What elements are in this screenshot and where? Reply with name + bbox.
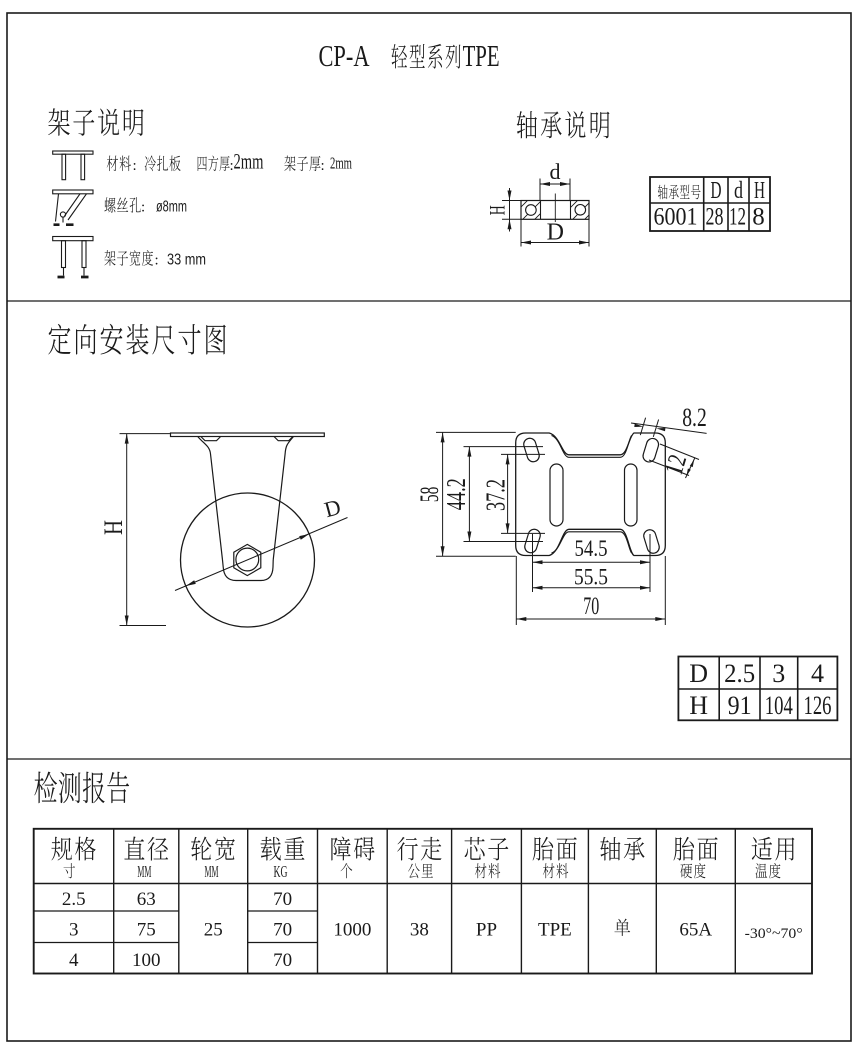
svg-text:D: D <box>322 494 344 522</box>
svg-text:MM: MM <box>137 862 151 881</box>
svg-text:44.2: 44.2 <box>441 478 471 510</box>
svg-text::: : <box>321 158 325 174</box>
svg-text:54.5: 54.5 <box>575 536 608 561</box>
svg-text:2.5: 2.5 <box>724 659 755 688</box>
svg-text:CP-A: CP-A <box>319 38 370 73</box>
svg-text:1000: 1000 <box>333 920 371 941</box>
svg-text:25: 25 <box>204 920 223 941</box>
svg-text:8: 8 <box>752 204 765 231</box>
svg-text:33 mm: 33 mm <box>167 252 206 269</box>
svg-text:TPE: TPE <box>538 920 572 941</box>
svg-text:91: 91 <box>728 691 752 720</box>
svg-text:TPE: TPE <box>463 38 500 73</box>
svg-text:KG: KG <box>274 862 288 881</box>
svg-text:D: D <box>689 659 708 688</box>
svg-text:58: 58 <box>415 487 444 503</box>
svg-text:75: 75 <box>137 920 156 941</box>
svg-text:D: D <box>711 178 722 204</box>
svg-text:70: 70 <box>273 950 292 971</box>
svg-text:H: H <box>754 178 765 204</box>
svg-text:55.5: 55.5 <box>574 564 608 589</box>
svg-text:8.2: 8.2 <box>682 403 707 432</box>
svg-text:4: 4 <box>811 659 824 688</box>
svg-text:70: 70 <box>273 889 292 910</box>
svg-text:2mm: 2mm <box>234 149 264 174</box>
svg-text:d: d <box>734 178 743 204</box>
svg-text:104: 104 <box>765 691 793 720</box>
svg-text:6001: 6001 <box>654 204 698 231</box>
svg-text:2.5: 2.5 <box>62 889 86 910</box>
svg-text::: : <box>155 253 159 269</box>
svg-text:4: 4 <box>69 950 79 971</box>
svg-text:-30°~70°: -30°~70° <box>745 926 803 942</box>
svg-text:2mm: 2mm <box>330 154 352 173</box>
svg-text:63: 63 <box>137 889 156 910</box>
svg-text:38: 38 <box>410 920 429 941</box>
svg-text:H: H <box>689 691 708 720</box>
svg-text:70: 70 <box>273 920 292 941</box>
svg-text:PP: PP <box>476 920 497 941</box>
svg-text:d: d <box>550 159 561 184</box>
svg-text::: : <box>133 158 137 174</box>
svg-text:12: 12 <box>729 204 746 231</box>
svg-text:100: 100 <box>132 950 161 971</box>
svg-text:3: 3 <box>772 659 785 688</box>
svg-text:65A: 65A <box>679 920 712 941</box>
svg-text:37.2: 37.2 <box>481 479 511 511</box>
svg-text:70: 70 <box>583 593 599 620</box>
svg-text:3: 3 <box>69 920 79 941</box>
svg-text:126: 126 <box>804 691 832 720</box>
svg-text:D: D <box>547 220 564 246</box>
svg-text:H: H <box>99 520 128 535</box>
svg-text:H: H <box>484 205 509 215</box>
svg-text:MM: MM <box>205 862 219 881</box>
svg-text::: : <box>141 200 145 216</box>
svg-text:ø8mm: ø8mm <box>156 199 187 216</box>
svg-text:28: 28 <box>706 204 724 231</box>
